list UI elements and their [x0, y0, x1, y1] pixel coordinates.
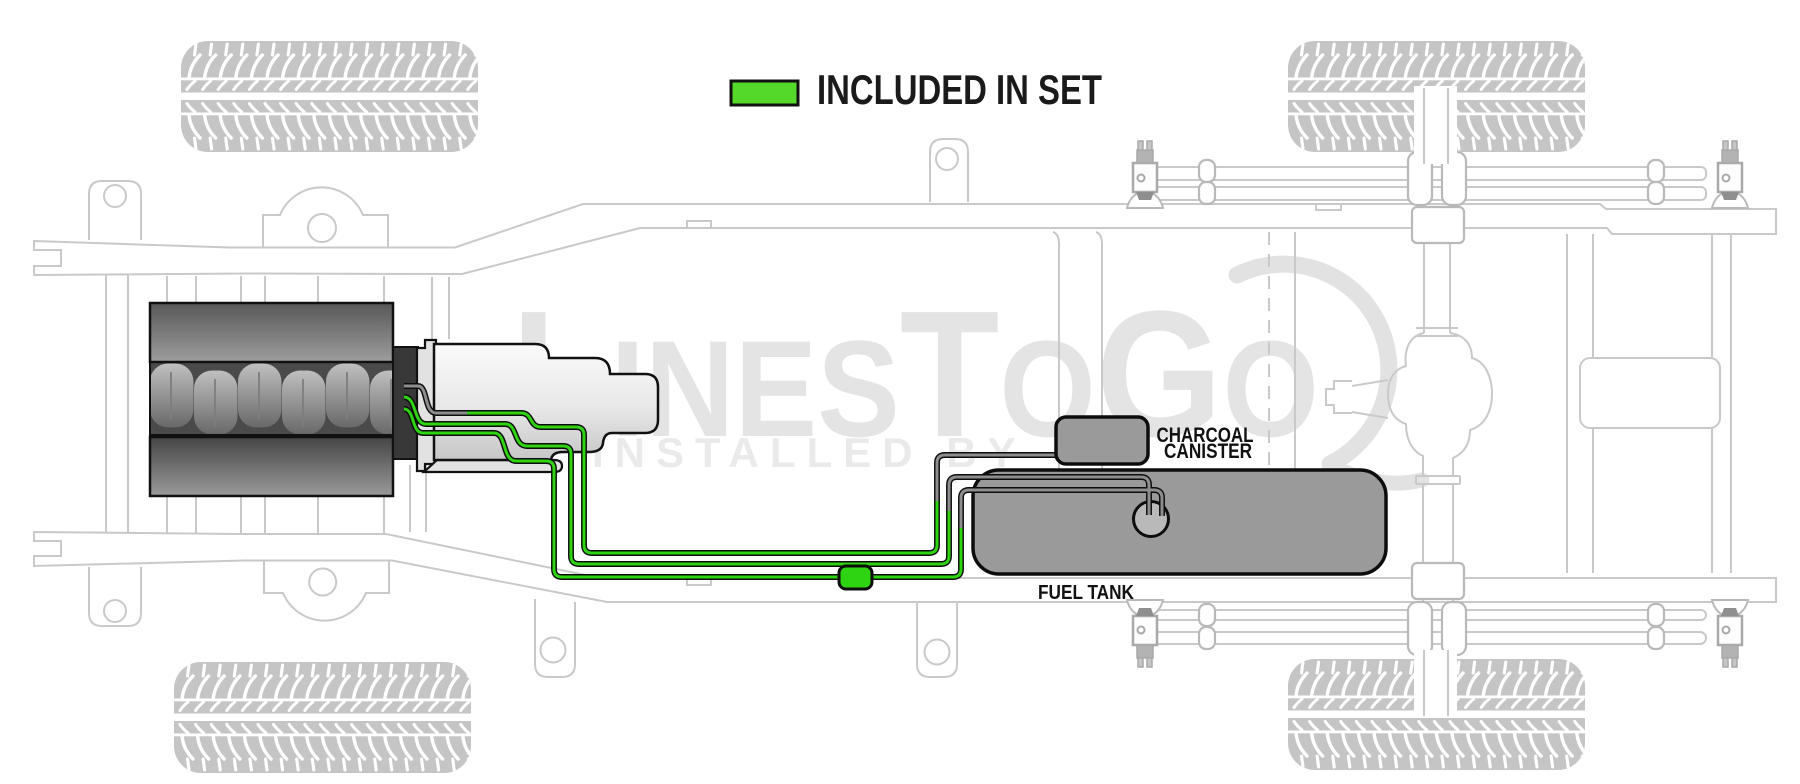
svg-text:INCLUDED IN SET: INCLUDED IN SET [817, 66, 1102, 113]
svg-text:FUEL TANK: FUEL TANK [1038, 582, 1134, 604]
svg-text:CANISTER: CANISTER [1164, 440, 1252, 463]
